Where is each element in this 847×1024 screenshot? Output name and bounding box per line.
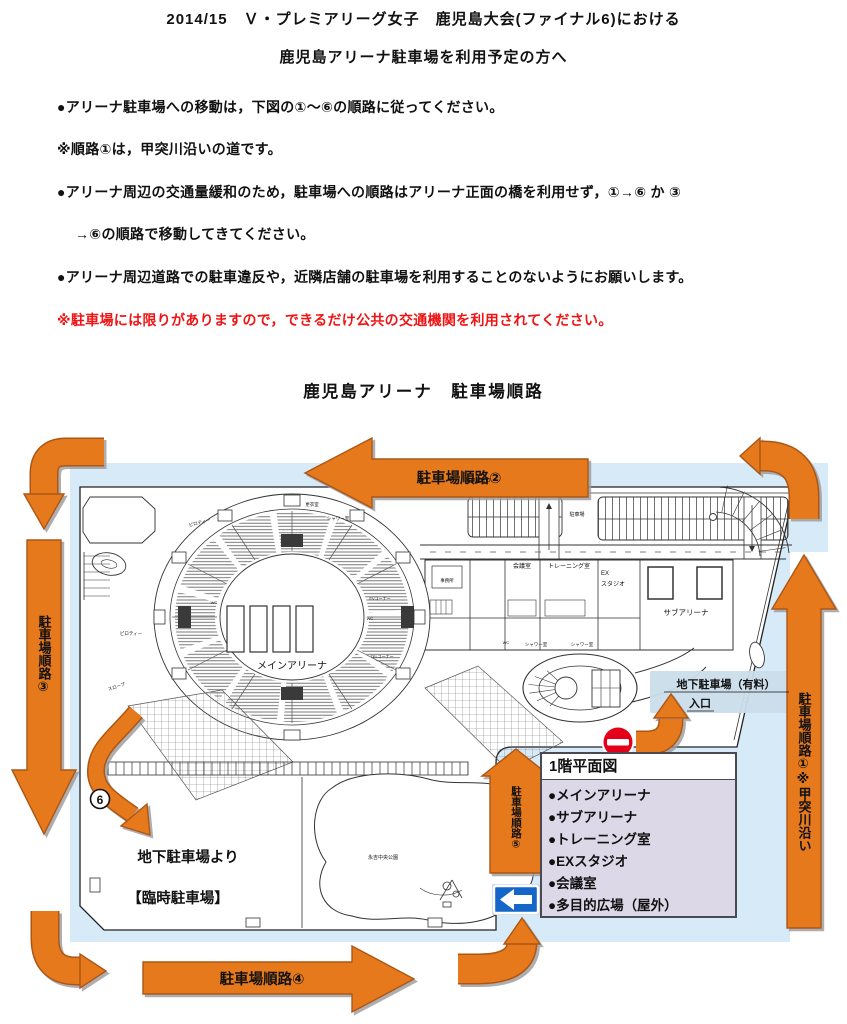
route5-label: 駐車場順路⑤ [510,785,522,850]
park-name-label: 永吉中央公園 [368,854,398,861]
parking-exit-label: 駐車場出口 [465,477,490,484]
wc-label-1: WC [211,600,218,605]
training-room-label: トレーニング室 [548,562,590,570]
doc-title-line2: 鹿児島アリーナ駐車場を利用予定の方へ [0,46,847,67]
map-title: 鹿児島アリーナ 駐車場順路 [0,378,847,402]
meeting-room-label: 会議室 [513,562,531,570]
temporary-parking-label: 【臨時駐車場】 [127,889,229,907]
wc-label-3: WC [503,640,510,645]
ev-corner-label: EVコーナー [369,595,390,601]
warning-text: ※駐車場には限りがありますので，できるだけ公共の交通機関を利用されてください。 [57,310,613,330]
parking-lot-label: 駐車場 [569,511,584,518]
from-underground-label: 地下駐車場より [137,848,238,866]
office-label: 事務所 [440,577,454,584]
underground-entrance-line1: 地下駐車場（有料） [677,677,776,691]
east-buildings [425,560,733,650]
bullet-2: ●アリーナ周辺の交通量緩和のため，駐車場への順路はアリーナ正面の橋を利用せず，①… [57,182,681,202]
south-parking-strip [108,762,468,775]
doc-title-line1: 2014/15 Ｖ・プレミアリーグ女子 鹿児島大会(ファイナル6)における [0,8,847,29]
locker-label: 更衣室 [305,501,319,508]
shower-label-3: シャワー室 [571,641,594,647]
parking-notice-page: { "doc": { "title1": "2014/15 Ｖ・プレミアリーグ女… [0,0,847,1024]
route3-label: 駐車場順路③ [37,614,52,695]
parking-route-map: 6 駐車場順路② 駐車場順路④ 駐車場順路③ 駐車場順路①※甲突川沿い 駐車場順… [0,412,847,1024]
left-arrow-sign-icon [492,884,540,915]
legend-item-training: ●トレーニング室 [548,829,735,851]
legend-item-meeting: ●会議室 [548,873,735,895]
legend-item-main-arena: ●メインアリーナ [548,785,735,807]
sub-arena-label: サブアリーナ [664,607,709,617]
legend-title: 1階平面図 [542,754,735,780]
shower-label-1: シャワー室 [327,515,350,521]
legend-item-multi-plaza: ●多目的広場（屋外） [548,895,735,917]
bullet-2-cont: →⑥の順路で移動してきてください。 [75,224,315,244]
legend-item-sub-arena: ●サブアリーナ [548,807,735,829]
bullet-1: ●アリーナ駐車場への移動は，下図の①～⑥の順路に従ってください。 [57,97,504,117]
svg-text:6: 6 [97,793,104,807]
legend-item-ex-studio: ●EXスタジオ [548,851,735,873]
underground-entrance-line2: 入口 [689,697,711,710]
floorplan-legend: 1階平面図 ●メインアリーナ ●サブアリーナ ●トレーニング室 ●EXスタジオ … [540,752,737,918]
shower-label-2: シャワー室 [525,641,548,647]
route1-label: 駐車場順路①※甲突川沿い [797,691,813,852]
ex-studio-label-1: EX [601,571,609,577]
route6-badge: 6 [91,790,110,809]
ex-studio-label-2: スタジオ [601,580,625,588]
route4-label: 駐車場順路④ [220,970,305,988]
tel-corner-label: TELコーナー [370,653,393,659]
wc-label-2: WC [367,616,374,621]
main-arena-label: メインアリーナ [257,660,327,672]
note-route1: ※順路①は，甲突川沿いの道です。 [57,139,282,159]
bullet-3: ●アリーナ周辺道路での駐車違反や，近隣店舗の駐車場を利用することのないようにお願… [57,267,693,287]
